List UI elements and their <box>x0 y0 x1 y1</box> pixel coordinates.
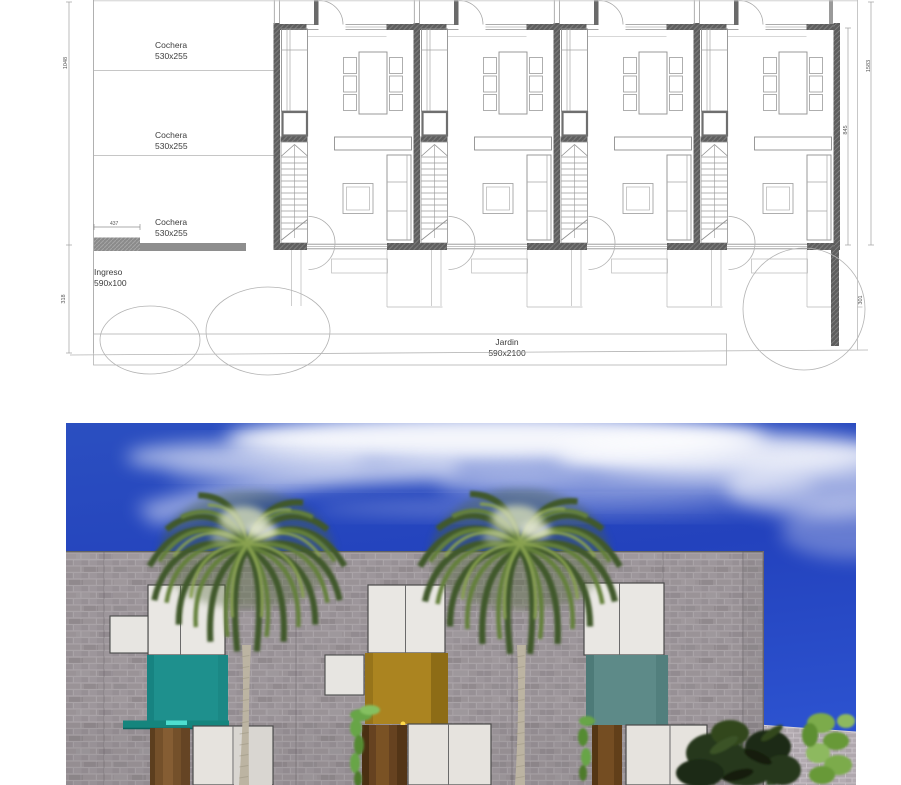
svg-text:1583: 1583 <box>866 60 872 72</box>
svg-text:590x2100: 590x2100 <box>488 348 526 358</box>
svg-text:530x255: 530x255 <box>155 228 188 238</box>
svg-text:Ingreso: Ingreso <box>94 267 123 277</box>
svg-text:530x255: 530x255 <box>155 51 188 61</box>
svg-text:530x255: 530x255 <box>155 141 188 151</box>
svg-text:Cochera: Cochera <box>155 40 187 50</box>
svg-text:1048: 1048 <box>63 57 69 69</box>
svg-text:590x100: 590x100 <box>94 278 127 288</box>
svg-text:845: 845 <box>843 125 849 134</box>
svg-text:437: 437 <box>110 221 119 227</box>
svg-text:Cochera: Cochera <box>155 217 187 227</box>
svg-text:Jardin: Jardin <box>495 337 518 347</box>
svg-text:318: 318 <box>61 294 67 303</box>
svg-text:301: 301 <box>858 295 864 304</box>
svg-text:Cochera: Cochera <box>155 130 187 140</box>
